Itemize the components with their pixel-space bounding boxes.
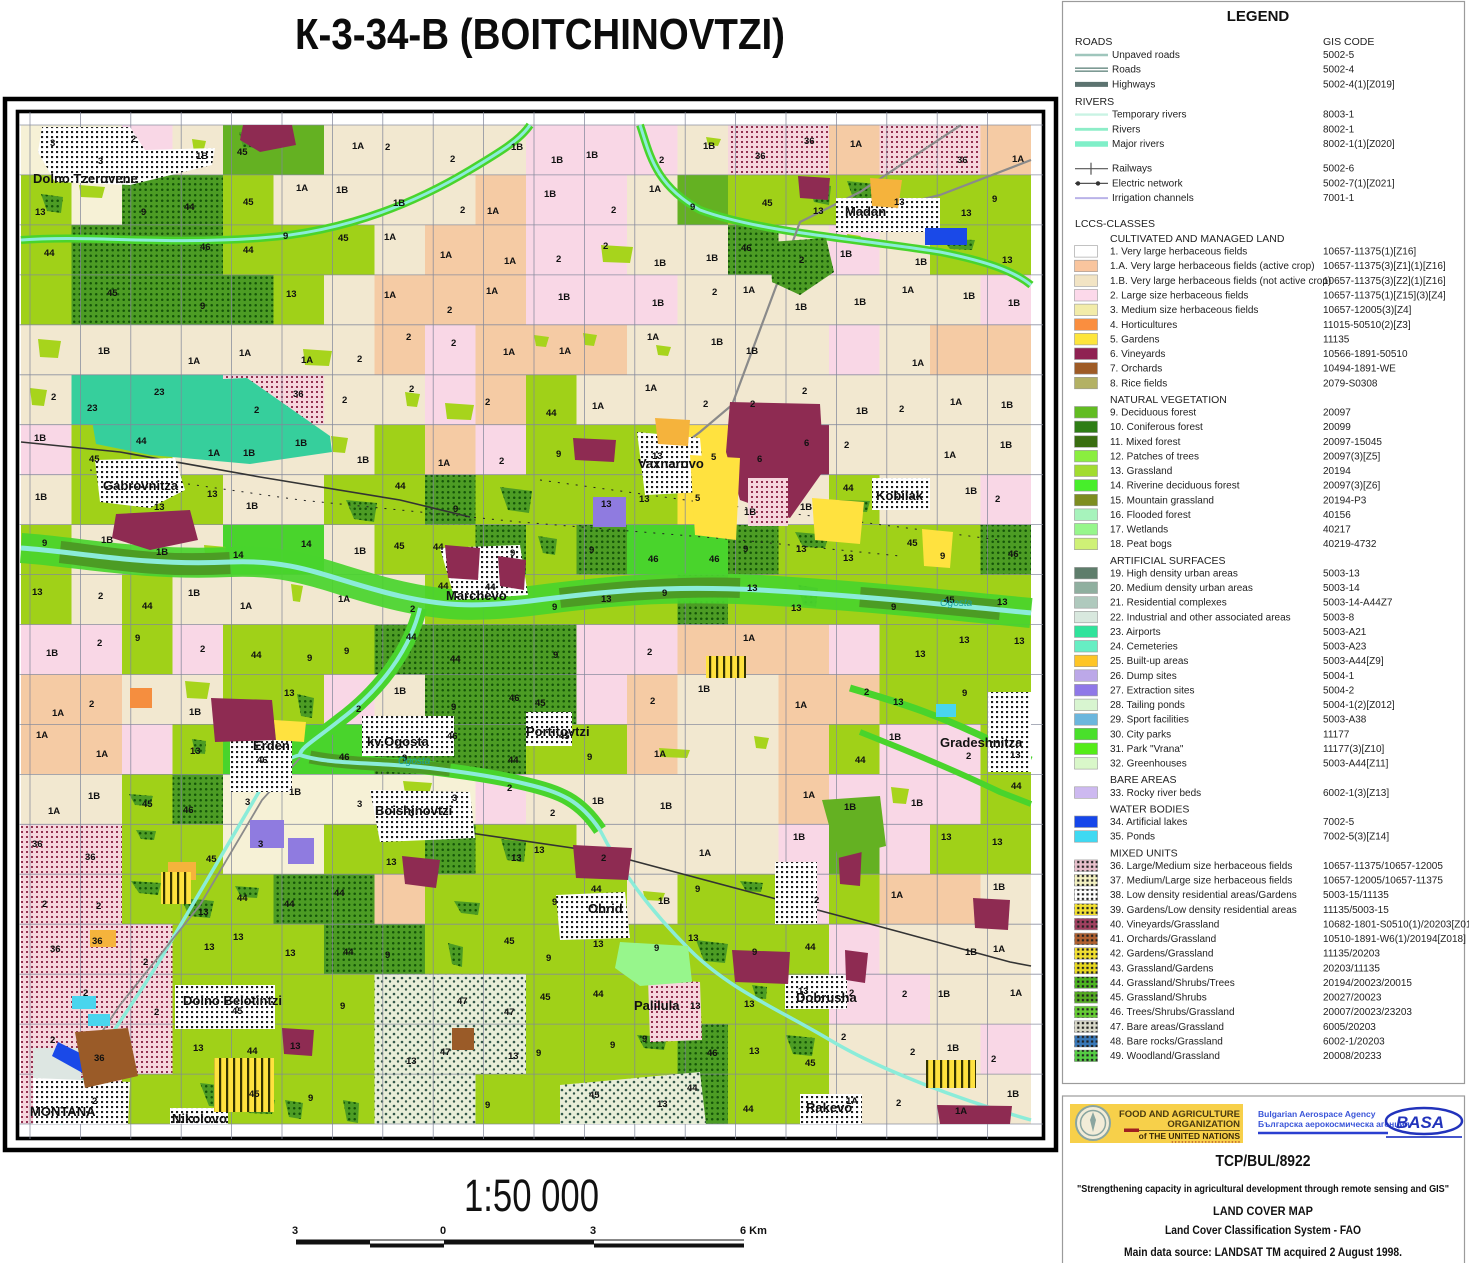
svg-text:1A: 1A <box>912 358 924 369</box>
svg-text:К-3-34-В (BOITCHINOVTZI): К-3-34-В (BOITCHINOVTZI) <box>295 10 785 59</box>
svg-text:2: 2 <box>98 591 103 602</box>
svg-text:Dobrusha: Dobrusha <box>796 990 857 1005</box>
svg-text:9: 9 <box>283 231 288 242</box>
svg-text:49. Woodland/Grassland: 49. Woodland/Grassland <box>1110 1051 1220 1062</box>
svg-text:13: 13 <box>32 587 43 598</box>
svg-text:48. Bare rocks/Grassland: 48. Bare rocks/Grassland <box>1110 1037 1223 1048</box>
svg-text:13: 13 <box>992 837 1003 848</box>
svg-text:2: 2 <box>864 687 869 698</box>
svg-text:13: 13 <box>593 939 604 950</box>
svg-text:1A: 1A <box>503 347 515 358</box>
svg-text:20097-15045: 20097-15045 <box>1323 437 1382 448</box>
svg-text:2079-S0308: 2079-S0308 <box>1323 378 1378 389</box>
svg-text:2: 2 <box>200 644 205 655</box>
svg-text:44: 44 <box>184 202 195 213</box>
svg-text:1B: 1B <box>911 798 923 809</box>
svg-text:20097: 20097 <box>1323 408 1351 419</box>
svg-text:5003-14-A44Z7: 5003-14-A44Z7 <box>1323 598 1393 609</box>
svg-text:9: 9 <box>553 650 558 661</box>
svg-text:44: 44 <box>855 755 866 766</box>
svg-text:5003-A44[Z11]: 5003-A44[Z11] <box>1323 759 1389 770</box>
svg-text:44: 44 <box>743 1104 754 1115</box>
svg-text:10657-11375(3)[Z2](1)[Z16]: 10657-11375(3)[Z2](1)[Z16] <box>1323 276 1446 287</box>
svg-text:13: 13 <box>747 583 758 594</box>
svg-text:20097(3)[Z5]: 20097(3)[Z5] <box>1323 451 1380 462</box>
svg-text:1B: 1B <box>915 257 927 268</box>
svg-text:33. Rocky river beds: 33. Rocky river beds <box>1110 788 1201 799</box>
svg-text:1B: 1B <box>856 406 868 417</box>
svg-text:5003-A44[Z9]: 5003-A44[Z9] <box>1323 656 1384 667</box>
svg-text:40217: 40217 <box>1323 525 1351 536</box>
svg-text:1A: 1A <box>438 458 450 469</box>
svg-text:Erden: Erden <box>253 738 290 753</box>
svg-text:2: 2 <box>841 1032 846 1043</box>
svg-text:36. Large/Medium size herbaceo: 36. Large/Medium size herbaceous fields <box>1110 861 1292 872</box>
svg-text:2: 2 <box>51 392 56 403</box>
svg-text:1A: 1A <box>208 448 220 459</box>
svg-text:28. Tailing ponds: 28. Tailing ponds <box>1110 700 1185 711</box>
svg-text:9: 9 <box>552 897 557 908</box>
svg-text:5002-5: 5002-5 <box>1323 50 1355 61</box>
svg-text:45: 45 <box>540 992 551 1003</box>
svg-text:9: 9 <box>141 207 146 218</box>
svg-text:30. City parks: 30. City parks <box>1110 729 1171 740</box>
svg-text:LAND COVER MAP: LAND COVER MAP <box>1213 1206 1313 1218</box>
svg-text:1A: 1A <box>96 749 108 760</box>
svg-text:2: 2 <box>650 696 655 707</box>
svg-text:1B: 1B <box>246 501 258 512</box>
svg-text:3: 3 <box>292 1225 298 1237</box>
svg-text:20194-P3: 20194-P3 <box>1323 495 1367 506</box>
svg-text:1B: 1B <box>795 302 807 313</box>
svg-text:46: 46 <box>709 554 720 565</box>
svg-text:1A: 1A <box>592 401 604 412</box>
svg-text:9: 9 <box>552 602 557 613</box>
svg-text:1A: 1A <box>654 749 666 760</box>
svg-text:36: 36 <box>804 136 815 147</box>
svg-text:18. Peat bogs: 18. Peat bogs <box>1110 539 1172 550</box>
svg-text:Portitovtzi: Portitovtzi <box>526 724 590 739</box>
svg-text:44: 44 <box>805 942 816 953</box>
svg-text:45: 45 <box>535 698 546 709</box>
svg-text:9: 9 <box>690 202 695 213</box>
svg-text:1B: 1B <box>551 155 563 166</box>
svg-text:1B: 1B <box>844 802 856 813</box>
svg-text:2: 2 <box>131 134 136 145</box>
svg-text:9: 9 <box>642 1034 647 1045</box>
svg-text:1A: 1A <box>296 183 308 194</box>
svg-text:3: 3 <box>590 1225 596 1237</box>
svg-text:38. Low density residential ar: 38. Low density residential areas/Garden… <box>1110 890 1297 901</box>
svg-text:44: 44 <box>247 1046 258 1057</box>
svg-text:TCP/BUL/8922: TCP/BUL/8922 <box>1216 1153 1311 1170</box>
svg-text:13: 13 <box>639 494 650 505</box>
svg-text:11. Mixed forest: 11. Mixed forest <box>1110 437 1181 448</box>
svg-text:1B: 1B <box>947 1043 959 1054</box>
svg-text:45: 45 <box>243 197 254 208</box>
svg-text:20097(3)[Z6]: 20097(3)[Z6] <box>1323 481 1380 492</box>
svg-text:10494-1891-WE: 10494-1891-WE <box>1323 364 1396 375</box>
svg-text:1B: 1B <box>243 448 255 459</box>
svg-text:9: 9 <box>589 545 594 556</box>
svg-text:1A: 1A <box>1010 988 1022 999</box>
svg-text:5: 5 <box>695 493 701 504</box>
svg-text:12. Patches of trees: 12. Patches of trees <box>1110 451 1199 462</box>
svg-text:1B: 1B <box>295 438 307 449</box>
svg-text:2: 2 <box>603 241 608 252</box>
svg-text:1A: 1A <box>902 285 914 296</box>
svg-text:36: 36 <box>94 1053 105 1064</box>
svg-text:1A: 1A <box>188 356 200 367</box>
svg-text:1B: 1B <box>1001 400 1013 411</box>
svg-text:5003-A21: 5003-A21 <box>1323 627 1367 638</box>
svg-text:1A: 1A <box>743 633 755 644</box>
svg-text:2: 2 <box>712 287 717 298</box>
svg-text:9: 9 <box>695 884 700 895</box>
svg-text:1B: 1B <box>336 185 348 196</box>
svg-text:Marchevo: Marchevo <box>446 588 507 603</box>
svg-text:13: 13 <box>997 597 1008 608</box>
svg-text:1.B. Very large herbaceous fie: 1.B. Very large herbaceous fields (not a… <box>1110 276 1331 287</box>
svg-text:13: 13 <box>601 594 612 605</box>
svg-text:5003-A38: 5003-A38 <box>1323 715 1367 726</box>
svg-text:1B: 1B <box>586 150 598 161</box>
svg-text:* * * * * * * * * * * * * * *: * * * * * * * * * * * * * * * * * * * * … <box>1171 1141 1240 1147</box>
svg-text:9: 9 <box>556 449 561 460</box>
svg-text:1. Very large herbaceous field: 1. Very large herbaceous fields <box>1110 247 1247 258</box>
svg-text:1B: 1B <box>1007 1089 1019 1100</box>
svg-text:24. Cemeteries: 24. Cemeteries <box>1110 642 1178 653</box>
svg-text:1B: 1B <box>156 547 168 558</box>
svg-text:46. Trees/Shrubs/Grassland: 46. Trees/Shrubs/Grassland <box>1110 1007 1235 1018</box>
svg-text:1A: 1A <box>559 346 571 357</box>
svg-text:37. Medium/Large size herbaceo: 37. Medium/Large size herbaceous fields <box>1110 876 1292 887</box>
svg-text:9: 9 <box>546 953 551 964</box>
svg-text:39. Gardens/Low density reside: 39. Gardens/Low density residential area… <box>1110 905 1297 916</box>
svg-text:Madan: Madan <box>845 204 886 219</box>
svg-text:1A: 1A <box>52 708 64 719</box>
svg-text:2: 2 <box>601 853 606 864</box>
svg-text:13: 13 <box>534 845 545 856</box>
svg-text:1B: 1B <box>35 492 47 503</box>
svg-text:9: 9 <box>385 950 390 961</box>
svg-text:9: 9 <box>587 752 592 763</box>
svg-text:Bulgarian Aerospace Agency: Bulgarian Aerospace Agency <box>1258 1109 1376 1119</box>
svg-text:1A: 1A <box>384 290 396 301</box>
svg-text:9: 9 <box>308 1093 313 1104</box>
svg-text:0: 0 <box>440 1225 446 1237</box>
svg-text:1B: 1B <box>289 787 301 798</box>
svg-text:45: 45 <box>89 454 100 465</box>
svg-text:2: 2 <box>910 1047 915 1058</box>
svg-text:13: 13 <box>193 1043 204 1054</box>
svg-text:2: 2 <box>450 154 455 165</box>
svg-text:7002-5: 7002-5 <box>1323 817 1355 828</box>
svg-text:10657-11375/10657-12005: 10657-11375/10657-12005 <box>1323 861 1443 872</box>
svg-text:2: 2 <box>83 988 88 999</box>
svg-text:1A: 1A <box>384 232 396 243</box>
svg-text:1B: 1B <box>357 455 369 466</box>
svg-text:of THE UNITED NATIONS: of THE UNITED NATIONS <box>1139 1131 1241 1141</box>
svg-text:2: 2 <box>844 440 849 451</box>
svg-text:1A: 1A <box>649 184 661 195</box>
svg-text:46: 46 <box>648 554 659 565</box>
svg-text:RIVERS: RIVERS <box>1075 96 1114 108</box>
svg-text:1B: 1B <box>993 882 1005 893</box>
svg-text:Nikolovo: Nikolovo <box>172 1111 227 1126</box>
svg-text:2. Large size herbaceous field: 2. Large size herbaceous fields <box>1110 291 1248 302</box>
svg-text:1A: 1A <box>352 141 364 152</box>
svg-text:43. Grassland/Gardens: 43. Grassland/Gardens <box>1110 963 1213 974</box>
svg-text:46: 46 <box>509 693 520 704</box>
svg-text:13: 13 <box>1002 255 1013 266</box>
svg-text:1B: 1B <box>1000 440 1012 451</box>
svg-text:2: 2 <box>154 1007 159 1018</box>
svg-text:9: 9 <box>752 947 757 958</box>
svg-text:NATURAL VEGETATION: NATURAL VEGETATION <box>1110 394 1227 406</box>
svg-text:9: 9 <box>891 602 896 613</box>
svg-text:6: 6 <box>757 454 762 465</box>
svg-text:44: 44 <box>843 483 854 494</box>
svg-text:BASA: BASA <box>1396 1113 1444 1132</box>
svg-text:2: 2 <box>966 751 971 762</box>
svg-text:32. Greenhouses: 32. Greenhouses <box>1110 759 1187 770</box>
svg-text:CULTIVATED AND MANAGED LAND: CULTIVATED AND MANAGED LAND <box>1110 233 1285 245</box>
svg-text:1B: 1B <box>698 684 710 695</box>
svg-text:45: 45 <box>338 233 349 244</box>
svg-text:9: 9 <box>344 646 349 657</box>
svg-text:1B: 1B <box>703 141 715 152</box>
svg-text:2: 2 <box>647 647 652 658</box>
svg-text:9: 9 <box>662 588 667 599</box>
svg-text:Highways: Highways <box>1112 79 1155 90</box>
svg-text:47: 47 <box>504 1007 515 1018</box>
svg-text:5004-1: 5004-1 <box>1323 671 1355 682</box>
svg-text:2: 2 <box>802 386 807 397</box>
svg-text:6002-1(3)[Z13]: 6002-1(3)[Z13] <box>1323 788 1389 799</box>
svg-text:1B: 1B <box>196 151 208 162</box>
svg-text:2: 2 <box>799 255 804 266</box>
svg-text:6 Km: 6 Km <box>740 1225 767 1237</box>
svg-text:44: 44 <box>142 601 153 612</box>
svg-text:9: 9 <box>200 301 205 312</box>
svg-text:5002-7(1)[Z021]: 5002-7(1)[Z021] <box>1323 178 1395 189</box>
svg-text:5003-15/11135: 5003-15/11135 <box>1323 890 1389 901</box>
svg-text:2: 2 <box>385 142 390 153</box>
svg-text:Boishinovtzi: Boishinovtzi <box>375 803 452 818</box>
svg-text:44: 44 <box>284 899 295 910</box>
svg-text:13: 13 <box>386 857 397 868</box>
svg-text:1B: 1B <box>592 796 604 807</box>
svg-text:2: 2 <box>409 384 414 395</box>
svg-text:13: 13 <box>35 207 46 218</box>
svg-text:2: 2 <box>406 332 411 343</box>
svg-text:13: 13 <box>959 635 970 646</box>
svg-text:20194/20023/20015: 20194/20023/20015 <box>1323 978 1412 989</box>
svg-text:LCCS-CLASSES: LCCS-CLASSES <box>1075 218 1155 230</box>
svg-text:40. Vineyards/Grassland: 40. Vineyards/Grassland <box>1110 919 1219 930</box>
svg-text:MONTANA: MONTANA <box>30 1104 96 1119</box>
svg-text:44: 44 <box>591 884 602 895</box>
svg-text:11135/5003-15: 11135/5003-15 <box>1323 905 1389 916</box>
svg-text:5004-2: 5004-2 <box>1323 685 1355 696</box>
svg-text:1B: 1B <box>706 253 718 264</box>
svg-text:15. Mountain grassland: 15. Mountain grassland <box>1110 495 1214 506</box>
svg-text:45: 45 <box>107 288 118 299</box>
svg-text:1B: 1B <box>744 507 756 518</box>
svg-text:17. Wetlands: 17. Wetlands <box>1110 525 1168 536</box>
svg-text:9. Deciduous forest: 9. Deciduous forest <box>1110 408 1196 419</box>
svg-text:1B: 1B <box>88 791 100 802</box>
svg-text:7002-5(3)[Z14]: 7002-5(3)[Z14] <box>1323 832 1389 843</box>
svg-text:44: 44 <box>44 248 55 259</box>
svg-text:13: 13 <box>688 933 699 944</box>
svg-text:Gabrovnitza: Gabrovnitza <box>103 478 179 493</box>
svg-text:9: 9 <box>340 1001 345 1012</box>
svg-text:1A: 1A <box>803 790 815 801</box>
svg-text:13: 13 <box>1010 750 1021 761</box>
svg-text:1B: 1B <box>511 142 523 153</box>
svg-text:46: 46 <box>257 755 268 766</box>
svg-text:45: 45 <box>589 1090 600 1101</box>
svg-text:45: 45 <box>237 147 248 158</box>
svg-text:46: 46 <box>447 731 458 742</box>
svg-text:1A: 1A <box>647 332 659 343</box>
svg-text:45: 45 <box>762 198 773 209</box>
svg-text:Vaxnarovo: Vaxnarovo <box>638 456 704 471</box>
svg-text:Unpaved roads: Unpaved roads <box>1112 50 1180 61</box>
svg-text:13: 13 <box>893 697 904 708</box>
svg-text:1B: 1B <box>889 732 901 743</box>
svg-text:36: 36 <box>293 389 304 400</box>
svg-text:44: 44 <box>343 947 354 958</box>
svg-text:44: 44 <box>1011 781 1022 792</box>
svg-text:1B: 1B <box>652 298 664 309</box>
svg-text:Land Cover Classification Syst: Land Cover Classification System - FAO <box>1165 1225 1361 1237</box>
svg-text:"Strengthening capacity in agr: "Strengthening capacity in agricultural … <box>1077 1184 1449 1195</box>
svg-text:1A: 1A <box>486 286 498 297</box>
svg-text:36: 36 <box>92 936 103 947</box>
svg-text:1B: 1B <box>963 291 975 302</box>
svg-text:10657-11375(3)[Z1](1)[Z16]: 10657-11375(3)[Z1](1)[Z16] <box>1323 261 1446 272</box>
svg-text:1B: 1B <box>711 337 723 348</box>
svg-text:1:50 000: 1:50 000 <box>464 1170 599 1221</box>
svg-text:36: 36 <box>755 151 766 162</box>
svg-text:Ogosta: Ogosta <box>398 756 431 767</box>
svg-text:Rivers: Rivers <box>1112 124 1140 135</box>
svg-text:1A: 1A <box>955 1106 967 1117</box>
svg-text:1A: 1A <box>944 450 956 461</box>
svg-text:GIS CODE: GIS CODE <box>1323 36 1374 48</box>
svg-text:1A: 1A <box>1012 154 1024 165</box>
svg-text:9: 9 <box>743 544 748 555</box>
svg-text:2: 2 <box>507 783 512 794</box>
svg-text:1B: 1B <box>840 249 852 260</box>
svg-text:20007/20023/23203: 20007/20023/23203 <box>1323 1007 1412 1018</box>
svg-text:13: 13 <box>284 688 295 699</box>
svg-text:9: 9 <box>485 1100 490 1111</box>
svg-text:1A: 1A <box>850 139 862 150</box>
svg-text:20203/11135: 20203/11135 <box>1323 963 1380 974</box>
svg-text:10657-11375(1)[Z15](3)[Z4]: 10657-11375(1)[Z15](3)[Z4] <box>1323 291 1446 302</box>
svg-text:kv.Ogosta: kv.Ogosta <box>367 734 430 749</box>
svg-text:3: 3 <box>50 138 55 149</box>
svg-text:5004-1(2)[Z012]: 5004-1(2)[Z012] <box>1323 700 1395 711</box>
svg-text:42. Gardens/Grassland: 42. Gardens/Grassland <box>1110 949 1213 960</box>
svg-text:44: 44 <box>251 650 262 661</box>
svg-text:Roads: Roads <box>1112 65 1141 76</box>
svg-text:2: 2 <box>659 155 664 166</box>
svg-text:44: 44 <box>508 755 519 766</box>
svg-text:8003-1: 8003-1 <box>1323 110 1355 121</box>
svg-text:1B: 1B <box>854 297 866 308</box>
svg-text:1A: 1A <box>338 594 350 605</box>
svg-text:Temporary rivers: Temporary rivers <box>1112 110 1186 121</box>
svg-text:1.A. Very large herbaceous fie: 1.A. Very large herbaceous fields (activ… <box>1110 261 1315 272</box>
svg-text:10682-1801-S0510(1)/20203[Z017: 10682-1801-S0510(1)/20203[Z017] <box>1323 919 1469 930</box>
svg-text:2: 2 <box>451 338 456 349</box>
svg-text:45: 45 <box>206 854 217 865</box>
svg-text:20099: 20099 <box>1323 422 1351 433</box>
svg-text:5: 5 <box>711 452 717 463</box>
svg-text:40156: 40156 <box>1323 510 1351 521</box>
svg-text:46: 46 <box>707 1048 718 1059</box>
svg-text:1B: 1B <box>98 346 110 357</box>
svg-text:5002-4: 5002-4 <box>1323 65 1355 76</box>
svg-text:23: 23 <box>87 403 98 414</box>
svg-text:1B: 1B <box>654 258 666 269</box>
svg-text:2: 2 <box>254 405 259 416</box>
svg-text:9: 9 <box>42 538 47 549</box>
svg-text:ROADS: ROADS <box>1075 36 1112 48</box>
svg-text:1B: 1B <box>746 346 758 357</box>
svg-text:44: 44 <box>450 654 461 665</box>
svg-text:36: 36 <box>85 852 96 863</box>
svg-text:13: 13 <box>961 208 972 219</box>
svg-text:21. Residential complexes: 21. Residential complexes <box>1110 598 1227 609</box>
svg-text:6005/20203: 6005/20203 <box>1323 1022 1376 1033</box>
svg-text:47: 47 <box>440 1047 451 1058</box>
svg-text:1B: 1B <box>793 832 805 843</box>
svg-text:45: 45 <box>805 1058 816 1069</box>
svg-text:1A: 1A <box>239 348 251 359</box>
svg-text:2: 2 <box>902 989 907 1000</box>
svg-text:9: 9 <box>940 551 945 562</box>
svg-text:13: 13 <box>1014 636 1025 647</box>
svg-text:13: 13 <box>813 206 824 217</box>
svg-text:11135/20203: 11135/20203 <box>1323 949 1380 960</box>
svg-text:2: 2 <box>896 1098 901 1109</box>
svg-text:44: 44 <box>243 245 254 256</box>
svg-text:14. Riverine deciduous forest: 14. Riverine deciduous forest <box>1110 481 1240 492</box>
svg-text:1A: 1A <box>645 383 657 394</box>
svg-text:1A: 1A <box>699 848 711 859</box>
svg-text:46: 46 <box>200 242 211 253</box>
svg-text:1A: 1A <box>891 890 903 901</box>
svg-text:8002-1: 8002-1 <box>1323 124 1355 135</box>
svg-text:6. Vineyards: 6. Vineyards <box>1110 349 1165 360</box>
svg-text:5003-8: 5003-8 <box>1323 612 1355 623</box>
svg-text:44: 44 <box>546 408 557 419</box>
svg-text:1A: 1A <box>993 944 1005 955</box>
svg-text:13: 13 <box>286 289 297 300</box>
svg-text:31. Park "Vrana": 31. Park "Vrana" <box>1110 744 1184 755</box>
svg-text:44: 44 <box>433 542 444 553</box>
svg-text:1B: 1B <box>800 502 812 513</box>
svg-text:36: 36 <box>50 944 61 955</box>
svg-text:1B: 1B <box>354 546 366 557</box>
svg-text:13: 13 <box>791 603 802 614</box>
